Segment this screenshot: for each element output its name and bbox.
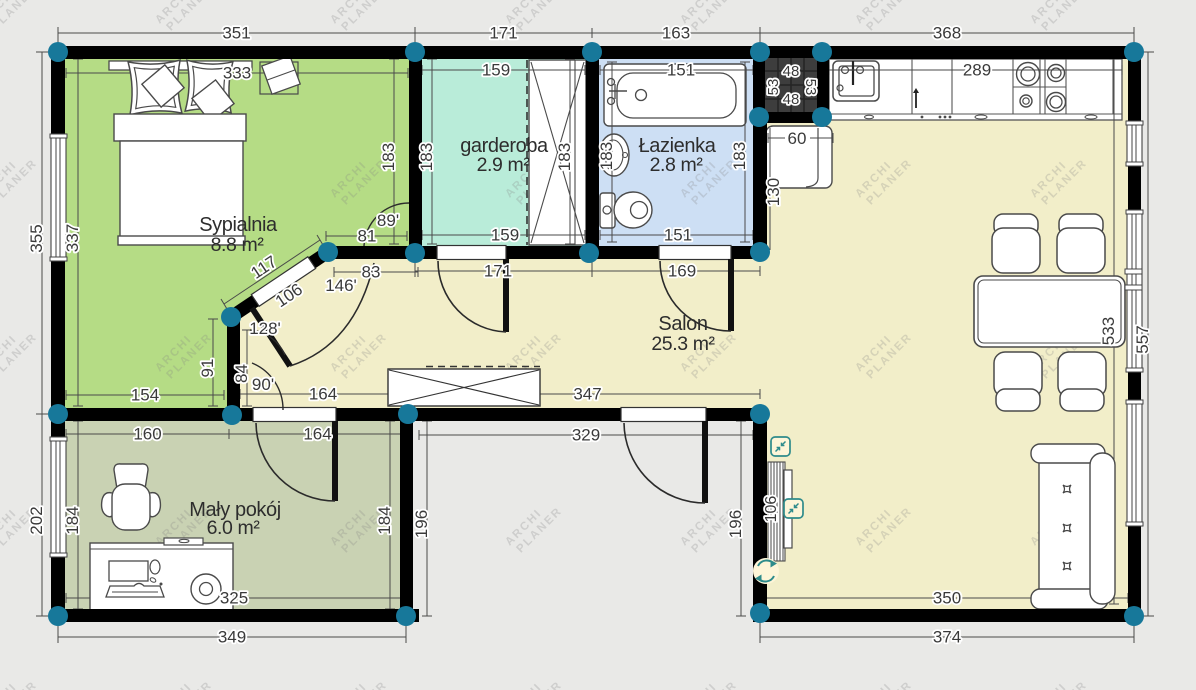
svg-text:183: 183 xyxy=(379,143,398,171)
svg-text:90': 90' xyxy=(252,375,274,394)
svg-text:368: 368 xyxy=(933,24,961,43)
svg-text:159: 159 xyxy=(482,61,510,80)
svg-text:48: 48 xyxy=(783,91,800,108)
svg-text:160: 160 xyxy=(133,425,161,444)
svg-text:184: 184 xyxy=(375,506,394,534)
svg-text:171: 171 xyxy=(484,262,512,281)
svg-text:374: 374 xyxy=(933,628,961,647)
svg-text:329: 329 xyxy=(572,426,600,445)
svg-text:91: 91 xyxy=(198,359,217,378)
svg-text:183: 183 xyxy=(597,142,616,170)
svg-text:Salon: Salon xyxy=(658,313,707,335)
svg-text:164: 164 xyxy=(303,425,331,444)
svg-text:557: 557 xyxy=(1133,325,1152,353)
svg-text:533: 533 xyxy=(1099,317,1118,345)
svg-text:8.8 m²: 8.8 m² xyxy=(211,234,265,256)
svg-text:154: 154 xyxy=(131,386,159,405)
svg-text:2.9 m²: 2.9 m² xyxy=(477,154,531,176)
svg-text:184: 184 xyxy=(63,506,82,534)
svg-text:128': 128' xyxy=(249,319,281,338)
svg-text:6.0 m²: 6.0 m² xyxy=(207,517,261,539)
svg-text:325: 325 xyxy=(220,589,248,608)
svg-text:83: 83 xyxy=(362,263,381,282)
svg-text:159: 159 xyxy=(491,226,519,245)
svg-text:81: 81 xyxy=(358,227,377,246)
svg-text:355: 355 xyxy=(27,224,46,252)
svg-text:89': 89' xyxy=(377,211,399,230)
svg-text:196: 196 xyxy=(726,510,745,538)
svg-text:151: 151 xyxy=(664,226,692,245)
svg-text:347: 347 xyxy=(573,385,601,404)
svg-text:351: 351 xyxy=(222,24,250,43)
svg-text:146': 146' xyxy=(325,276,357,295)
svg-text:164: 164 xyxy=(309,385,337,404)
svg-text:130: 130 xyxy=(764,178,783,206)
svg-text:337: 337 xyxy=(63,224,82,252)
svg-text:151: 151 xyxy=(667,61,695,80)
svg-text:350: 350 xyxy=(933,589,961,608)
svg-text:183: 183 xyxy=(555,143,574,171)
svg-text:171: 171 xyxy=(489,24,517,43)
svg-text:202: 202 xyxy=(27,506,46,534)
svg-text:60: 60 xyxy=(788,129,807,148)
svg-text:196: 196 xyxy=(412,510,431,538)
svg-text:333: 333 xyxy=(223,64,251,83)
svg-text:183: 183 xyxy=(417,143,436,171)
svg-text:106: 106 xyxy=(763,496,780,523)
svg-text:25.3 m²: 25.3 m² xyxy=(651,333,715,355)
svg-text:53: 53 xyxy=(802,79,819,96)
svg-text:289: 289 xyxy=(963,61,991,80)
svg-text:Sypialnia: Sypialnia xyxy=(199,214,278,236)
svg-text:53: 53 xyxy=(765,79,782,96)
svg-text:169: 169 xyxy=(668,262,696,281)
svg-text:84: 84 xyxy=(232,364,251,383)
svg-text:349: 349 xyxy=(218,628,246,647)
svg-text:2.8 m²: 2.8 m² xyxy=(650,154,704,176)
svg-text:163: 163 xyxy=(662,24,690,43)
svg-text:183: 183 xyxy=(730,142,749,170)
svg-text:48: 48 xyxy=(783,63,800,80)
